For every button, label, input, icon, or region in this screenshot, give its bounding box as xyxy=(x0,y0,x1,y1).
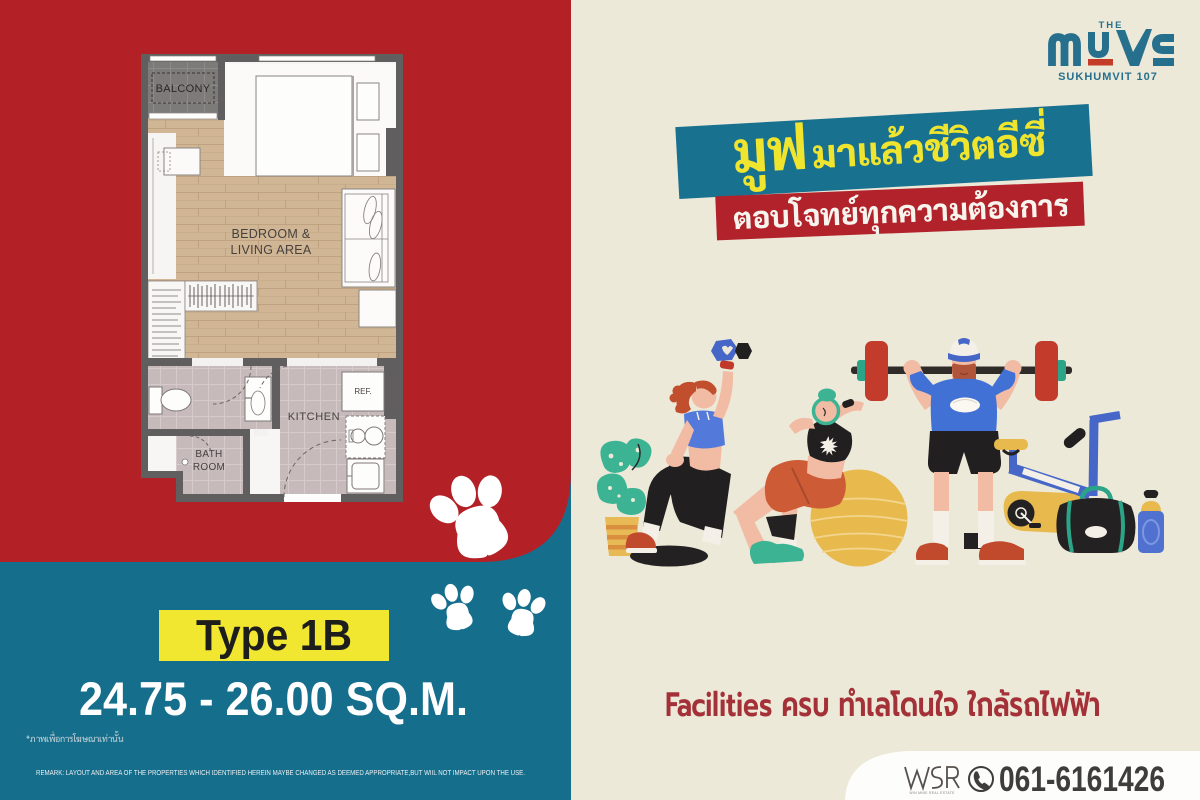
svg-text:KITCHEN: KITCHEN xyxy=(288,411,340,423)
svg-text:REF.: REF. xyxy=(354,387,371,396)
svg-text:BATH: BATH xyxy=(195,449,222,460)
svg-text:ROOM: ROOM xyxy=(193,462,225,473)
svg-text:BALCONY: BALCONY xyxy=(156,83,211,95)
svg-text:REMARK: LAYOUT AND AREA OF THE: REMARK: LAYOUT AND AREA OF THE PROPERTIE… xyxy=(36,768,525,777)
svg-text:061-6161426: 061-6161426 xyxy=(999,760,1165,799)
svg-text:BEDROOM &: BEDROOM & xyxy=(231,227,310,241)
svg-text:LIVING AREA: LIVING AREA xyxy=(230,243,311,257)
svg-text:Type 1B: Type 1B xyxy=(196,611,352,660)
svg-text:24.75 - 26.00 SQ.M.: 24.75 - 26.00 SQ.M. xyxy=(79,672,468,725)
svg-text:SUKHUMVIT 107: SUKHUMVIT 107 xyxy=(1058,71,1158,83)
svg-text:WIN MINE REAL ESTATE: WIN MINE REAL ESTATE xyxy=(909,791,955,795)
svg-text:THE: THE xyxy=(1099,20,1124,31)
